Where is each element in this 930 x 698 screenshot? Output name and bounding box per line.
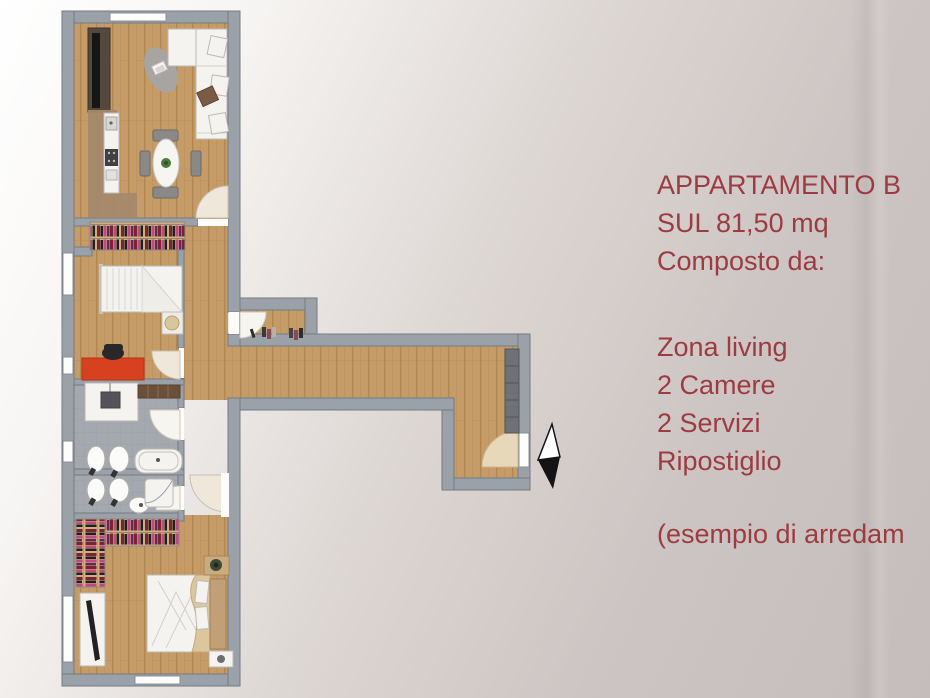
lamp	[165, 316, 179, 330]
floors	[74, 23, 524, 675]
apartment-floorplan	[0, 0, 620, 698]
bed-single	[99, 264, 182, 314]
tv-unit	[88, 28, 110, 112]
feature-ripostiglio: Ripostiglio	[657, 442, 930, 480]
bidet-bathroom2	[87, 478, 105, 502]
entry-cabinet	[505, 349, 519, 433]
desk-red	[82, 358, 144, 380]
feature-camere: 2 Camere	[657, 366, 930, 404]
apartment-area: SUL 81,50 mq	[657, 204, 930, 242]
nightstand-bedroom1	[162, 312, 183, 334]
nightstand-bedroom2-bottom	[209, 651, 233, 667]
window-bedroom2	[63, 596, 73, 662]
window-living-top	[110, 13, 166, 21]
desk-chair	[102, 344, 124, 360]
wardrobe-bedroom2-side	[76, 519, 105, 587]
entry-door-opening	[519, 433, 529, 467]
sink-bathroom1	[87, 446, 105, 472]
dresser	[80, 593, 105, 666]
window-bedroom1-desk	[63, 357, 73, 374]
kitchen-counter	[104, 113, 119, 193]
wardrobe-bedroom1	[90, 222, 185, 250]
furnishing-note: (esempio di arredam	[657, 515, 930, 553]
apartment-title: APPARTAMENTO B	[657, 166, 930, 204]
bathroom1-shelf	[138, 385, 180, 398]
brochure-page: APPARTAMENTO B SUL 81,50 mq Composto da:…	[0, 0, 930, 698]
info-panel: APPARTAMENTO B SUL 81,50 mq Composto da:…	[657, 166, 930, 553]
feature-zona-living: Zona living	[657, 328, 930, 366]
stove	[105, 149, 118, 166]
bed-double	[147, 575, 226, 652]
tv-screen	[92, 33, 100, 108]
headboard	[210, 579, 226, 649]
bathtub	[135, 449, 182, 473]
window-bathroom1	[63, 441, 73, 462]
shower-bathroom2	[145, 479, 173, 507]
sink-bathroom2	[109, 478, 129, 502]
window-bedroom2-bottom	[135, 676, 180, 684]
shower-niche	[85, 383, 138, 421]
bidet-bathroom1	[109, 446, 129, 472]
feature-list: Zona living 2 Camere 2 Servizi Ripostigl…	[657, 328, 930, 480]
feature-servizi: 2 Servizi	[657, 404, 930, 442]
nightstand-bedroom2-top	[204, 556, 229, 575]
wardrobe-bedroom2-top	[105, 519, 179, 546]
window-bedroom1	[63, 253, 73, 295]
entrance-arrow-icon	[538, 424, 560, 489]
composition-heading: Composto da:	[657, 242, 930, 280]
